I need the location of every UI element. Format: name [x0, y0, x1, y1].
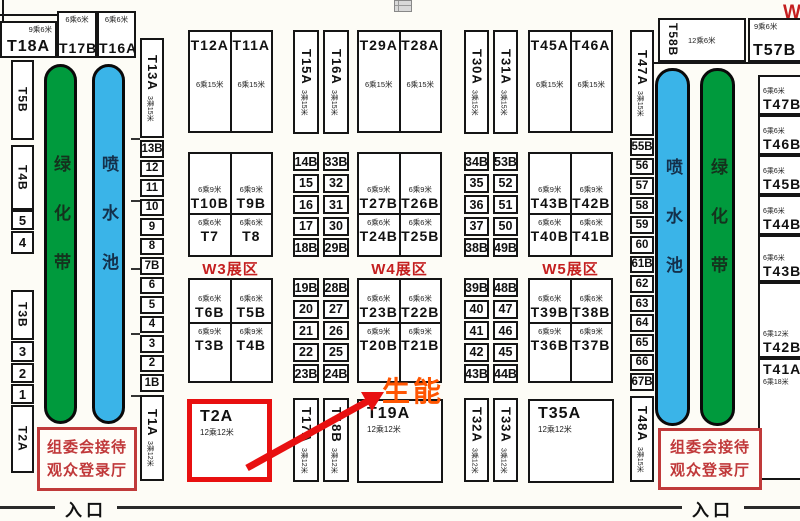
booth-cell-58: 58 [630, 197, 654, 215]
booth-size-label: 12乘12米 [367, 424, 441, 435]
booth-cell-label: 58 [636, 200, 649, 212]
booth-cell-39B: 39B [464, 278, 489, 297]
booth-cell-T2A: T2A [11, 405, 34, 473]
booth-name-label: T30A [470, 49, 485, 85]
booth-cell-45: 45 [493, 343, 518, 362]
booth-name-label: T16A [99, 40, 134, 56]
booth-T43B-edge: 6乘6米 T43B [758, 235, 800, 282]
booth-cell-label: 2 [19, 366, 26, 381]
booth-cell-label: 55B [631, 141, 652, 153]
entrance-label-right: 入口 [682, 496, 744, 521]
booth-T36B: 6乘9米T36B [529, 323, 571, 382]
booth-cell-label: 42 [470, 345, 484, 359]
booth-name-label: T3B [195, 337, 224, 353]
booth-cell-41: 41 [464, 321, 489, 340]
booth-cell-16: 16 [293, 195, 319, 214]
wall-tick [131, 200, 140, 202]
booth-cell-label: 8 [149, 240, 155, 252]
booth-cell-5: 5 [140, 296, 164, 314]
booth-cell-13B: 13B [140, 140, 164, 158]
booth-cell-label: 48B [494, 281, 517, 295]
booth-size-label: 6乘9米 [198, 184, 221, 195]
booth-cell-label: 23B [295, 367, 318, 381]
booth-T46B-edge: 6乘6米 T46B [758, 115, 800, 155]
booth-size-label: 6乘9米 [409, 326, 432, 337]
booth-T19A: T19A 12乘12米 [357, 399, 443, 483]
booth-cell-7B: 7B [140, 257, 164, 275]
booth-cell-40: 40 [464, 300, 489, 319]
booth-cell-label: 44B [494, 367, 517, 381]
booth-size-label: 12乘12米 [538, 424, 612, 435]
booth-cell-label: 36 [470, 198, 484, 212]
booth-size-label: 6乘6米 [198, 217, 221, 228]
booth-T24B: 6乘6米T24B [358, 214, 400, 256]
booth-cell-label: 2 [149, 357, 155, 369]
green-belt-right: 绿化带 [700, 68, 735, 426]
booth-size-label: 6乘6米 [367, 217, 390, 228]
booth-cell-label: 57 [636, 180, 649, 192]
booth-T8: 6乘6米T8 [231, 214, 273, 256]
booth-name-label: T5B [237, 304, 266, 320]
booth-cell-label: 7B [145, 260, 160, 272]
booth-name-label: T11A [233, 37, 270, 53]
booth-T23B: 6乘6米T23B [358, 279, 400, 323]
mini-column-39B: 39B40414243B [464, 278, 489, 383]
booth-T5B: 6乘6米T5B [231, 279, 273, 323]
booth-cell-label: 49B [494, 241, 517, 255]
booth-T31A: T31A3乘15米 [493, 30, 518, 134]
booth-T18B: T18B3乘12米 [323, 398, 349, 482]
booth-name-label: T1A [145, 409, 160, 437]
booth-cell-17: 17 [293, 217, 319, 236]
booth-size-label: 6乘6米 [538, 293, 561, 304]
booth-name-label: T26B [401, 195, 439, 211]
mini-column-48B: 48B47464544B [493, 278, 518, 383]
booth-cell-T3B: T3B [11, 290, 34, 340]
booth-name-label: T43B [763, 263, 800, 279]
booth-cell-32: 32 [323, 174, 349, 193]
booth-cell-59: 59 [630, 216, 654, 234]
booth-size-label: 6乘9米 [538, 326, 561, 337]
booth-name-label: T45B [763, 176, 800, 192]
booth-size-label: 6乘6米 [763, 253, 785, 263]
booth-cell-label: 27 [329, 302, 343, 316]
booth-name-label: T46B [763, 136, 800, 152]
booth-cell-51: 51 [493, 195, 518, 214]
booth-cell-label: 12 [146, 162, 159, 174]
mini-column-53B: 53B52515049B [493, 152, 518, 257]
booth-cell-34B: 34B [464, 152, 489, 171]
booth-cell-26: 26 [323, 321, 349, 340]
booth-size-label: 6乘15米 [237, 79, 265, 90]
booth-cell-3: 3 [11, 341, 34, 362]
left-wall-booth-column: T5BT4B54T3B321T2A [11, 60, 34, 480]
booth-cell-label: 11 [146, 182, 158, 194]
booth-T42B-mid: 6乘9米T42B [571, 153, 613, 214]
entrance-label-left: 入口 [55, 496, 117, 521]
booth-cell-label: 10 [146, 201, 159, 213]
booth-T45B-edge: 6乘6米 T45B [758, 155, 800, 195]
zone-label-w5: W5展区 [528, 258, 613, 279]
booth-cell-label: 51 [499, 198, 513, 212]
booth-T18A: 9乘6米 T18A [0, 21, 57, 58]
booth-name-label: T48A [635, 406, 650, 442]
booth-T10B: 6乘9米T10B [189, 153, 231, 214]
booth-name-label: T13A [145, 55, 160, 91]
booth-size-label: 6乘9米 [240, 184, 263, 195]
booth-block-w5-low: 6乘6米T39B 6乘6米T38B 6乘9米T36B 6乘9米T37B [528, 278, 613, 383]
booth-size-label: 6乘6米 [580, 293, 603, 304]
booth-cell-label: 32 [329, 176, 343, 190]
boundary-line [0, 506, 800, 509]
booth-T29A: T29A 6乘15米 [358, 31, 400, 132]
booth-cell-label: 40 [470, 302, 484, 316]
booth-name-label: T46A [572, 37, 610, 53]
booth-cell-label: 1 [19, 387, 26, 402]
booth-cell-9: 9 [140, 218, 164, 236]
booth-size-label: 3乘15米 [330, 90, 337, 116]
booth-cell-2: 2 [140, 355, 164, 373]
booth-cell-42: 42 [464, 343, 489, 362]
booth-name-label: T31A [499, 49, 514, 85]
booth-size-label: 3乘15米 [300, 90, 307, 116]
inner-left-cell-column: 13B121110987B654321B [140, 140, 164, 392]
booth-name-label: T18A [2, 38, 55, 56]
booth-name-label: T2A [200, 408, 267, 426]
booth-name-label: T43B [531, 195, 569, 211]
booth-T16A-strip: T16A3乘15米 [323, 30, 349, 134]
booth-name-label: T39B [531, 304, 569, 320]
booth-name-label: T40B [531, 228, 569, 244]
booth-cell-60: 60 [630, 236, 654, 254]
booth-name-label: T47B [763, 96, 800, 112]
booth-T38B: 6乘6米T38B [571, 279, 613, 323]
booth-cell-label: 22 [299, 345, 313, 359]
booth-cell-label: 4 [149, 318, 155, 330]
booth-cell-label: 3 [19, 344, 26, 359]
booth-cell-66: 66 [630, 354, 654, 372]
booth-cell-14B: 14B [293, 152, 319, 171]
booth-cell-label: 20 [299, 302, 313, 316]
booth-name-label: T36B [531, 337, 569, 353]
booth-size-label: 3乘12米 [330, 448, 337, 474]
booth-name-label: T9B [237, 195, 266, 211]
booth-name-label: T47A [635, 50, 650, 86]
booth-cell-44B: 44B [493, 364, 518, 383]
booth-cell-55B: 55B [630, 138, 654, 156]
booth-cell-67B: 67B [630, 373, 654, 391]
booth-cell-label: 17 [299, 219, 313, 233]
booth-cell-label: 4 [19, 235, 26, 250]
booth-size-label: 6乘15米 [536, 79, 564, 90]
booth-T15A: T15A3乘15米 [293, 30, 319, 134]
wall-line [0, 14, 57, 16]
booth-cell-47: 47 [493, 300, 518, 319]
booth-T17B: 6乘6米 T17B [57, 11, 97, 58]
booth-block-w3-mid: 6乘9米T10B 6乘9米T9B 6乘6米T7 6乘6米T8 [188, 152, 273, 257]
booth-size-label: 6乘6米 [240, 217, 263, 228]
booth-size-label: 3乘12米 [146, 441, 153, 467]
wall-tick [131, 333, 140, 335]
booth-cell-64: 64 [630, 314, 654, 332]
booth-size-label: 6乘9米 [538, 184, 561, 195]
booth-cell-label: 16 [299, 198, 313, 212]
booth-cell-label: T4B [16, 165, 30, 191]
booth-size-label: 6乘9米 [367, 326, 390, 337]
booth-cell-label: 18B [295, 241, 318, 255]
booth-cell-20: 20 [293, 300, 319, 319]
booth-size-label: 3乘15米 [636, 91, 643, 117]
booth-size-label: 6乘12米 [763, 329, 789, 339]
booth-cell-label: 29B [325, 241, 348, 255]
booth-block-T45A-T46A: T45A 6乘15米 T46A 6乘15米 [528, 30, 613, 133]
booth-cell-4: 4 [11, 231, 34, 254]
booth-T4B: 6乘9米T4B [231, 323, 273, 382]
booth-name-label: T38B [572, 304, 610, 320]
booth-cell-label: 5 [149, 299, 155, 311]
booth-T33A: T33A3乘12米 [493, 398, 518, 482]
booth-name-label: T4B [237, 337, 266, 353]
booth-size-label: 6乘6米 [409, 217, 432, 228]
booth-T6B: 6乘6米T6B [189, 279, 231, 323]
booth-T41B: 6乘6米T41B [571, 214, 613, 256]
booth-size-label: 6乘9米 [367, 184, 390, 195]
booth-size-label: 6乘9米 [580, 184, 603, 195]
booth-cell-label: 21 [299, 324, 313, 338]
booth-cell-4: 4 [140, 316, 164, 334]
zone-label-w4: W4展区 [357, 258, 442, 279]
booth-name-label: T18B [329, 407, 344, 443]
booth-size-label: 6乘15米 [406, 79, 434, 90]
booth-cell-label: 56 [636, 160, 649, 172]
booth-size-label: 3乘12米 [471, 448, 478, 474]
booth-cell-56: 56 [630, 158, 654, 176]
booth-cell-18B: 18B [293, 238, 319, 257]
booth-cell-label: 62 [636, 278, 649, 290]
booth-cell-label: T3B [16, 302, 30, 328]
booth-size-label: 6乘6米 [763, 86, 785, 96]
booth-size-label: 9乘6米 [29, 24, 52, 35]
booth-cell-10: 10 [140, 199, 164, 217]
booth-cell-label: 63 [636, 298, 649, 310]
booth-cell-1B: 1B [140, 374, 164, 392]
booth-cell-label: 30 [329, 219, 343, 233]
booth-T28A: T28A 6乘15米 [400, 31, 442, 132]
booth-size-label: 6乘6米 [198, 293, 221, 304]
booth-T42B-edge: 6乘12米 T42B [758, 282, 800, 358]
booth-cell-label: 47 [499, 302, 513, 316]
booth-name-label: T41B [572, 228, 610, 244]
booth-name-label: T57B [750, 42, 800, 60]
booth-name-label: T7 [201, 228, 219, 244]
booth-cell-21: 21 [293, 321, 319, 340]
booth-T40B: 6乘6米T40B [529, 214, 571, 256]
booth-cell-label: 53B [494, 155, 517, 169]
booth-size-label: 3乘12米 [500, 448, 507, 474]
booth-cell-30: 30 [323, 217, 349, 236]
booth-size-label: 3乘15米 [146, 96, 153, 122]
reception-hall-left: 组委会接待 观众登录厅 [37, 427, 137, 491]
reception-line1: 组委会接待 [670, 436, 750, 459]
booth-size-label: 3乘15米 [636, 447, 643, 473]
booth-size-label: 6乘15米 [196, 79, 224, 90]
booth-size-label: 6乘6米 [240, 293, 263, 304]
booth-T46A: T46A 6乘15米 [571, 31, 613, 132]
booth-cell-label: 15 [299, 176, 313, 190]
booth-name-label: T12A [191, 37, 229, 53]
booth-cell-62: 62 [630, 275, 654, 293]
booth-cell-46: 46 [493, 321, 518, 340]
booth-cell-label: 45 [499, 345, 513, 359]
booth-T12A: T12A 6乘15米 [189, 31, 231, 132]
booth-T57B: 9乘6米 T57B [748, 18, 800, 62]
booth-cell-label: 41 [470, 324, 484, 338]
booth-cell-label: 34B [465, 155, 488, 169]
booth-T43B: 6乘9米T43B [529, 153, 571, 214]
booth-cell-label: 61B [631, 258, 652, 270]
booth-name-label: T21B [401, 337, 439, 353]
booth-cell-label: 13B [141, 143, 162, 155]
booth-cell-53B: 53B [493, 152, 518, 171]
booth-cell-49B: 49B [493, 238, 518, 257]
booth-T7: 6乘6米T7 [189, 214, 231, 256]
booth-cell-label: 5 [19, 213, 26, 228]
booth-cell-48B: 48B [493, 278, 518, 297]
booth-cell-label: 65 [636, 337, 649, 349]
booth-name-label: T17B [59, 40, 95, 56]
booth-name-label: T27B [360, 195, 398, 211]
booth-cell-label: 25 [329, 345, 343, 359]
booth-T25B: 6乘6米T25B [400, 214, 442, 256]
booth-cell-2: 2 [11, 363, 34, 383]
booth-cell-25: 25 [323, 343, 349, 362]
booth-name-label: T35A [538, 405, 612, 423]
booth-cell-label: 46 [499, 324, 513, 338]
booth-cell-1: 1 [11, 384, 34, 404]
wall-tick [131, 138, 140, 140]
booth-cell-T5B: T5B [11, 60, 34, 140]
booth-T13A: T13A3乘15米 [140, 38, 164, 138]
green-belt-label: 绿化带 [705, 158, 730, 305]
booth-T9B: 6乘9米T9B [231, 153, 273, 214]
booth-cell-35: 35 [464, 174, 489, 193]
booth-cell-label: 50 [499, 219, 513, 233]
booth-cell-label: 24B [325, 367, 348, 381]
fountain-left: 喷水池 [92, 64, 125, 424]
booth-cell-3: 3 [140, 335, 164, 353]
booth-name-label: T8 [242, 228, 260, 244]
booth-T47B-edge: 6乘6米 T47B [758, 75, 800, 115]
booth-size-label: 6乘9米 [580, 326, 603, 337]
booth-name-label: T10B [191, 195, 229, 211]
booth-size-label: 12乘12米 [200, 427, 267, 438]
booth-T17A: T17A3乘12米 [293, 398, 319, 482]
inner-right-cell-column: 55B565758596061B626364656667B [630, 138, 654, 392]
booth-cell-label: 6 [149, 279, 155, 291]
booth-block-w4-low: 6乘6米T23B 6乘6米T22B 6乘9米T20B 6乘9米T21B [357, 278, 442, 383]
booth-size-label: 6乘6米 [409, 293, 432, 304]
mini-column-14B: 14B15161718B [293, 152, 319, 257]
booth-T32A: T32A3乘12米 [464, 398, 489, 482]
booth-size-label: 6乘6米 [99, 14, 134, 25]
booth-name-label: T32A [470, 407, 485, 443]
booth-size-label: 6乘9米 [240, 326, 263, 337]
booth-size-label: 3乘12米 [300, 448, 307, 474]
booth-size-label: 6乘6米 [580, 217, 603, 228]
booth-cell-label: 59 [636, 219, 649, 231]
booth-cell-label: 1B [145, 377, 160, 389]
booth-name-label: T42B [763, 339, 800, 355]
booth-block-w5-mid: 6乘9米T43B 6乘9米T42B 6乘6米T40B 6乘6米T41B [528, 152, 613, 257]
booth-cell-label: 37 [470, 219, 484, 233]
booth-cell-label: T5B [16, 87, 30, 113]
booth-T39B: 6乘6米T39B [529, 279, 571, 323]
booth-name-label: T28A [401, 37, 439, 53]
fountain-label: 喷水池 [660, 158, 685, 305]
reception-line2: 观众登录厅 [47, 459, 127, 482]
booth-cell-65: 65 [630, 334, 654, 352]
booth-name-label: T24B [360, 228, 398, 244]
booth-size-label: 6乘6米 [538, 217, 561, 228]
booth-block-T29A-T28A: T29A 6乘15米 T28A 6乘15米 [357, 30, 442, 133]
booth-size-label: 3乘15米 [500, 90, 507, 116]
booth-size-label: 6乘6米 [763, 206, 785, 216]
booth-cell-37: 37 [464, 217, 489, 236]
booth-cell-label: 43B [465, 367, 488, 381]
booth-cell-52: 52 [493, 174, 518, 193]
reception-line1: 组委会接待 [47, 436, 127, 459]
booth-name-label: T41A [763, 361, 800, 377]
booth-name-label: T33A [499, 407, 514, 443]
zone-label-w3: W3展区 [188, 258, 273, 279]
booth-size-label: 6乘6米 [763, 126, 785, 136]
booth-cell-36: 36 [464, 195, 489, 214]
booth-cell-label: 52 [499, 176, 513, 190]
wall-tick [131, 395, 140, 397]
booth-cell-label: 66 [636, 356, 649, 368]
booth-cell-33B: 33B [323, 152, 349, 171]
booth-block-T12A-T11A: T12A 6乘15米 T11A 6乘15米 [188, 30, 273, 133]
booth-cell-label: 35 [470, 176, 484, 190]
exhibition-floor-plan: W 9乘6米 T18A 6乘6米 T17B 6乘6米 T16A T5BT4B54… [0, 0, 800, 521]
booth-T3B: 6乘9米T3B [189, 323, 231, 382]
booth-cell-24B: 24B [323, 364, 349, 383]
booth-cell-label: 3 [149, 338, 155, 350]
green-belt-label: 绿化带 [48, 155, 73, 302]
booth-size-label: 6乘15米 [365, 79, 393, 90]
booth-cell-23B: 23B [293, 364, 319, 383]
booth-name-label: T6B [195, 304, 224, 320]
wall-line [650, 62, 800, 64]
booth-T22B: 6乘6米T22B [400, 279, 442, 323]
booth-T47A: T47A3乘15米 [630, 30, 654, 136]
booth-size-label: 6乘9米 [198, 326, 221, 337]
booth-name-label: T29A [360, 37, 398, 53]
booth-cell-label: 31 [329, 198, 343, 212]
booth-cell-T4B: T4B [11, 145, 34, 210]
booth-size-label: 6乘6米 [763, 166, 785, 176]
booth-name-label: T20B [360, 337, 398, 353]
booth-cell-label: T2A [16, 426, 30, 452]
booth-cell-label: 19B [295, 281, 318, 295]
booth-size-label: 6乘9米 [409, 184, 432, 195]
booth-name-label: T23B [360, 304, 398, 320]
booth-cell-label: 26 [329, 324, 343, 338]
booth-name-label: T44B [763, 216, 800, 232]
wall-tick [131, 268, 140, 270]
booth-T35A: T35A 12乘12米 [528, 399, 614, 483]
booth-name-label: T16A [329, 49, 344, 85]
